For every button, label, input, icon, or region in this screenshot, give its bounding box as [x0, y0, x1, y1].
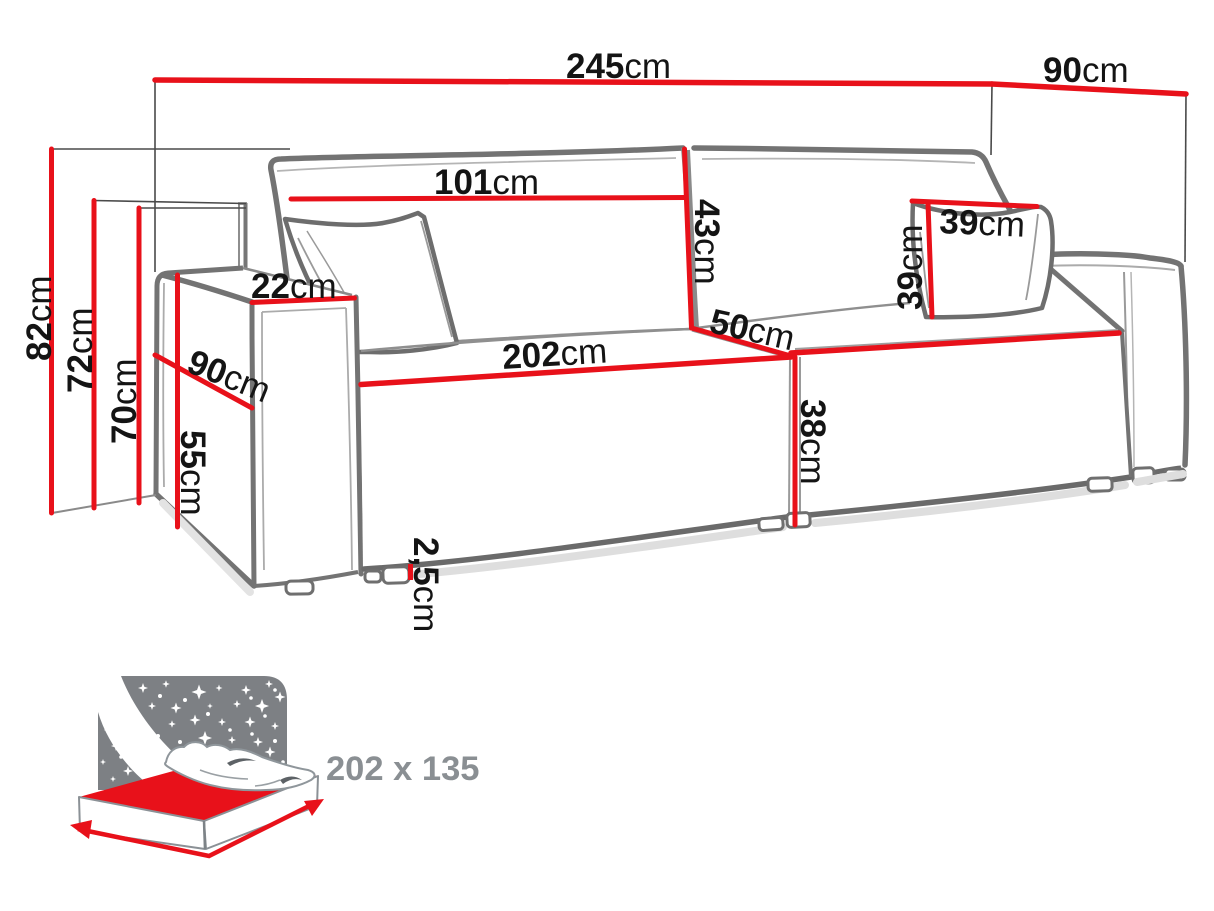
svg-text:39cm: 39cm [891, 224, 930, 310]
svg-text:22cm: 22cm [251, 267, 337, 306]
svg-text:38cm: 38cm [793, 399, 832, 485]
svg-text:101cm: 101cm [434, 163, 539, 202]
svg-text:82cm: 82cm [20, 275, 59, 361]
svg-text:202cm: 202cm [501, 331, 608, 377]
svg-text:43cm: 43cm [687, 199, 726, 285]
svg-text:55cm: 55cm [173, 430, 212, 516]
svg-text:202 x 135: 202 x 135 [326, 750, 479, 788]
svg-text:245cm: 245cm [566, 47, 671, 86]
svg-text:70cm: 70cm [105, 358, 144, 444]
svg-text:39cm: 39cm [939, 202, 1026, 245]
svg-text:2,5cm: 2,5cm [406, 537, 445, 632]
svg-text:90cm: 90cm [1043, 51, 1129, 90]
svg-text:72cm: 72cm [61, 307, 100, 393]
